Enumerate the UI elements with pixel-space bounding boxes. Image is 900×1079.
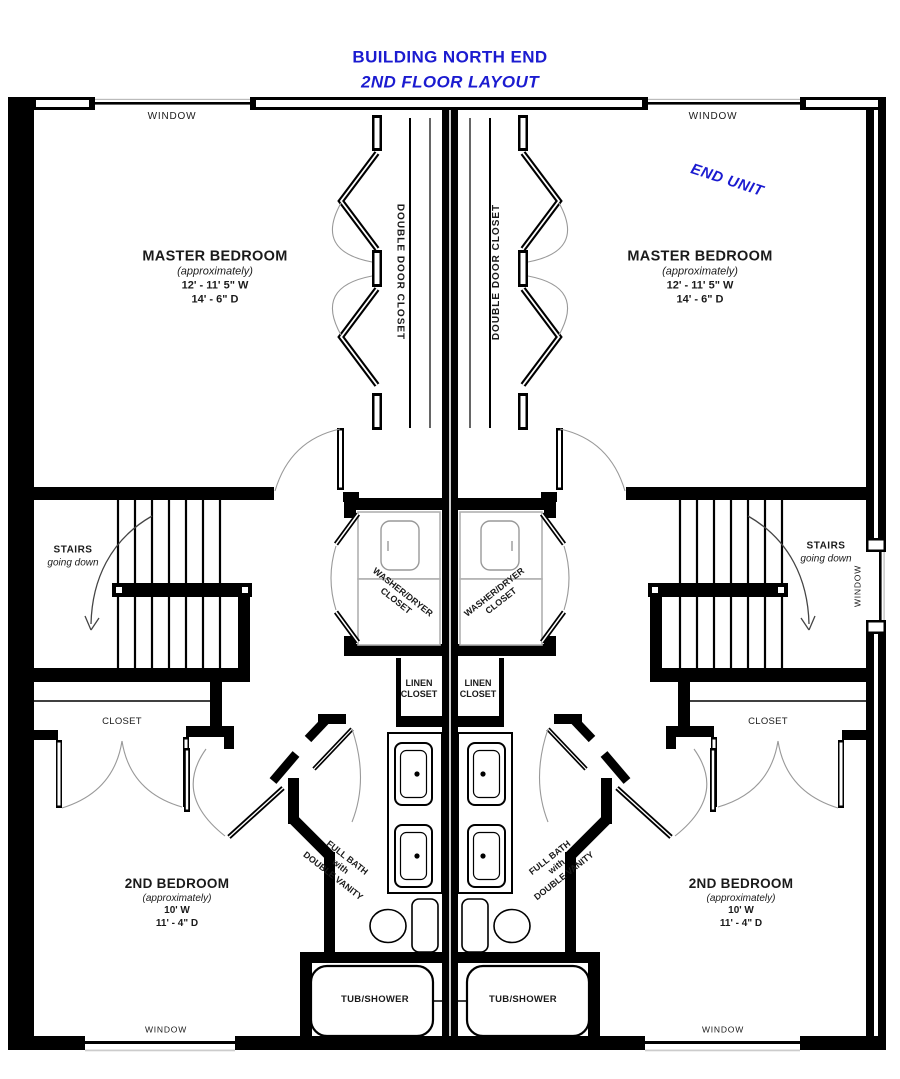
linen-line1: LINEN — [401, 678, 438, 689]
page-title: BUILDING NORTH END — [352, 46, 547, 67]
room-width: 12' - 11' 5" W — [142, 279, 287, 293]
master-bedroom-label-right: MASTER BEDROOM (approximately) 12' - 11'… — [627, 247, 772, 306]
window-label-bottom-right: WINDOW — [702, 1025, 744, 1036]
stairs-label-left: STAIRS going down — [47, 545, 98, 570]
linen-line1: LINEN — [460, 678, 497, 689]
linen-line2: CLOSET — [460, 689, 497, 700]
second-bedroom-label-right: 2ND BEDROOM (approximately) 10' W 11' - … — [689, 876, 794, 930]
closet-label-left: CLOSET — [102, 716, 142, 728]
room-approx: (approximately) — [142, 265, 287, 279]
room-name: 2ND BEDROOM — [125, 876, 230, 893]
tub-shower-label-right: TUB/SHOWER — [489, 994, 557, 1006]
room-name: MASTER BEDROOM — [627, 247, 772, 265]
room-width: 12' - 11' 5" W — [627, 279, 772, 293]
stairs-label-right: STAIRS going down — [800, 541, 851, 566]
tub-shower-label-left: TUB/SHOWER — [341, 994, 409, 1006]
room-depth: 14' - 6" D — [142, 293, 287, 307]
room-depth: 11' - 4" D — [125, 918, 230, 931]
double-door-closet-label-right: DOUBLE DOOR CLOSET — [491, 204, 504, 340]
stairs-line1: STAIRS — [800, 541, 851, 554]
window-label-top-right: WINDOW — [689, 111, 738, 124]
room-name: 2ND BEDROOM — [689, 876, 794, 893]
double-door-closet-label-left: DOUBLE DOOR CLOSET — [393, 204, 406, 340]
linen-closet-label-right: LINEN CLOSET — [460, 678, 497, 701]
window-label-top-left: WINDOW — [148, 111, 197, 124]
linen-closet-label-left: LINEN CLOSET — [401, 678, 438, 701]
room-approx: (approximately) — [125, 893, 230, 906]
room-depth: 14' - 6" D — [627, 293, 772, 307]
room-depth: 11' - 4" D — [689, 918, 794, 931]
window-label-right-wall: WINDOW — [853, 565, 864, 607]
master-bedroom-label-left: MASTER BEDROOM (approximately) 12' - 11'… — [142, 247, 287, 306]
room-approx: (approximately) — [627, 265, 772, 279]
room-approx: (approximately) — [689, 893, 794, 906]
stairs-line2: going down — [800, 553, 851, 566]
room-width: 10' W — [125, 905, 230, 918]
room-name: MASTER BEDROOM — [142, 247, 287, 265]
window-label-bottom-left: WINDOW — [145, 1025, 187, 1036]
second-bedroom-label-left: 2ND BEDROOM (approximately) 10' W 11' - … — [125, 876, 230, 930]
stairs-line2: going down — [47, 557, 98, 570]
room-width: 10' W — [689, 905, 794, 918]
floor-plan: BUILDING NORTH END 2ND FLOOR LAYOUT END … — [0, 0, 900, 1079]
page-subtitle: 2ND FLOOR LAYOUT — [361, 71, 539, 92]
stairs-line1: STAIRS — [47, 545, 98, 558]
closet-label-right: CLOSET — [748, 716, 788, 728]
linen-line2: CLOSET — [401, 689, 438, 700]
